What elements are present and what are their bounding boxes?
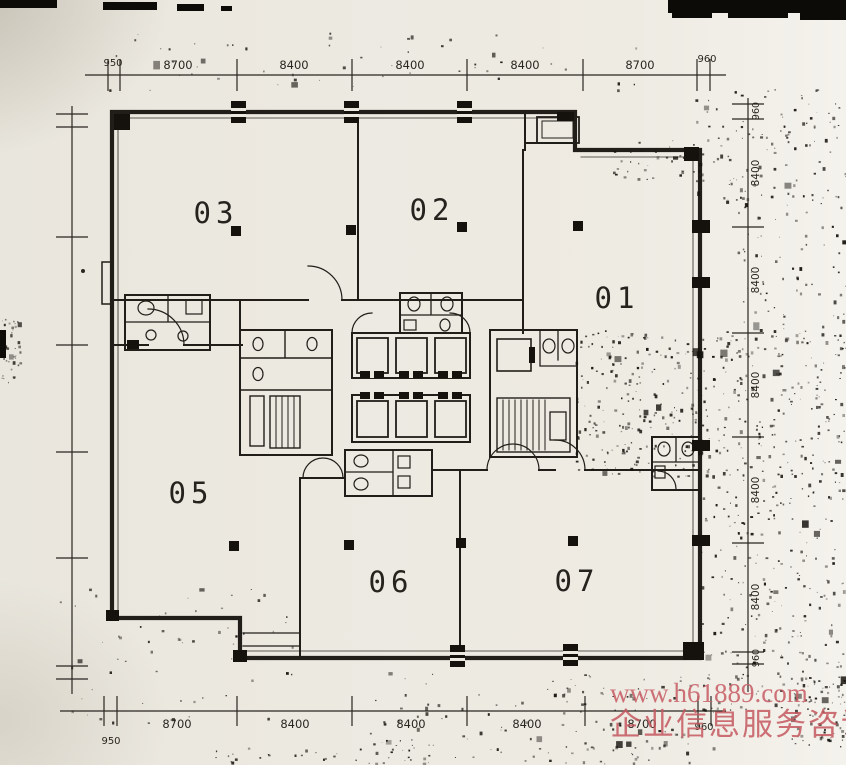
- dim-right-top-small: 960: [751, 102, 762, 120]
- dim-right-segment: 8400: [750, 372, 762, 399]
- dim-top-segment: 8400: [279, 58, 308, 72]
- dim-bottom-left-small: 950: [101, 736, 120, 747]
- scan-artifact-bars: [0, 0, 846, 358]
- elevator-bank-bottom: [352, 395, 470, 442]
- dim-top-right-small: 960: [697, 54, 716, 65]
- room-label-02: 02: [410, 193, 455, 227]
- exterior-steps: [243, 633, 300, 646]
- scan-dot: [81, 269, 85, 273]
- core-left-block: [240, 330, 332, 455]
- room-label-01: 01: [595, 281, 640, 315]
- room-label-06: 06: [369, 565, 414, 599]
- dim-bottom-segment: 8400: [280, 717, 309, 731]
- dim-right-segment: 8400: [750, 584, 762, 611]
- dim-right-segment: 8400: [750, 477, 762, 504]
- scanned-floor-plan: 9508700840084008400870096087008400840084…: [0, 0, 846, 765]
- dim-top-segment: 8400: [395, 58, 424, 72]
- room-label-05: 05: [169, 476, 214, 510]
- dim-top-segment: 8700: [163, 58, 192, 72]
- dim-right-bottom-small: 960: [751, 649, 762, 667]
- dim-right-segment: 8400: [750, 267, 762, 294]
- dim-bottom-right-small: 960: [694, 722, 713, 733]
- dim-bottom-segment: 8400: [396, 717, 425, 731]
- room-label-07: 07: [555, 564, 600, 598]
- dim-top-segment: 8400: [510, 58, 539, 72]
- dim-top-segment: 8700: [625, 58, 654, 72]
- dim-bottom-segment: 8400: [512, 717, 541, 731]
- core-bathroom-bottom: [345, 450, 432, 496]
- dim-bottom-segment: 8700: [162, 717, 191, 731]
- scan-noise: [0, 33, 846, 765]
- floor-plan-drawing: 9508700840084008400870096087008400840084…: [0, 0, 846, 765]
- dim-top-left-small: 950: [103, 58, 122, 69]
- dim-bottom-segment: 8700: [627, 717, 656, 731]
- room-label-03: 03: [194, 196, 239, 230]
